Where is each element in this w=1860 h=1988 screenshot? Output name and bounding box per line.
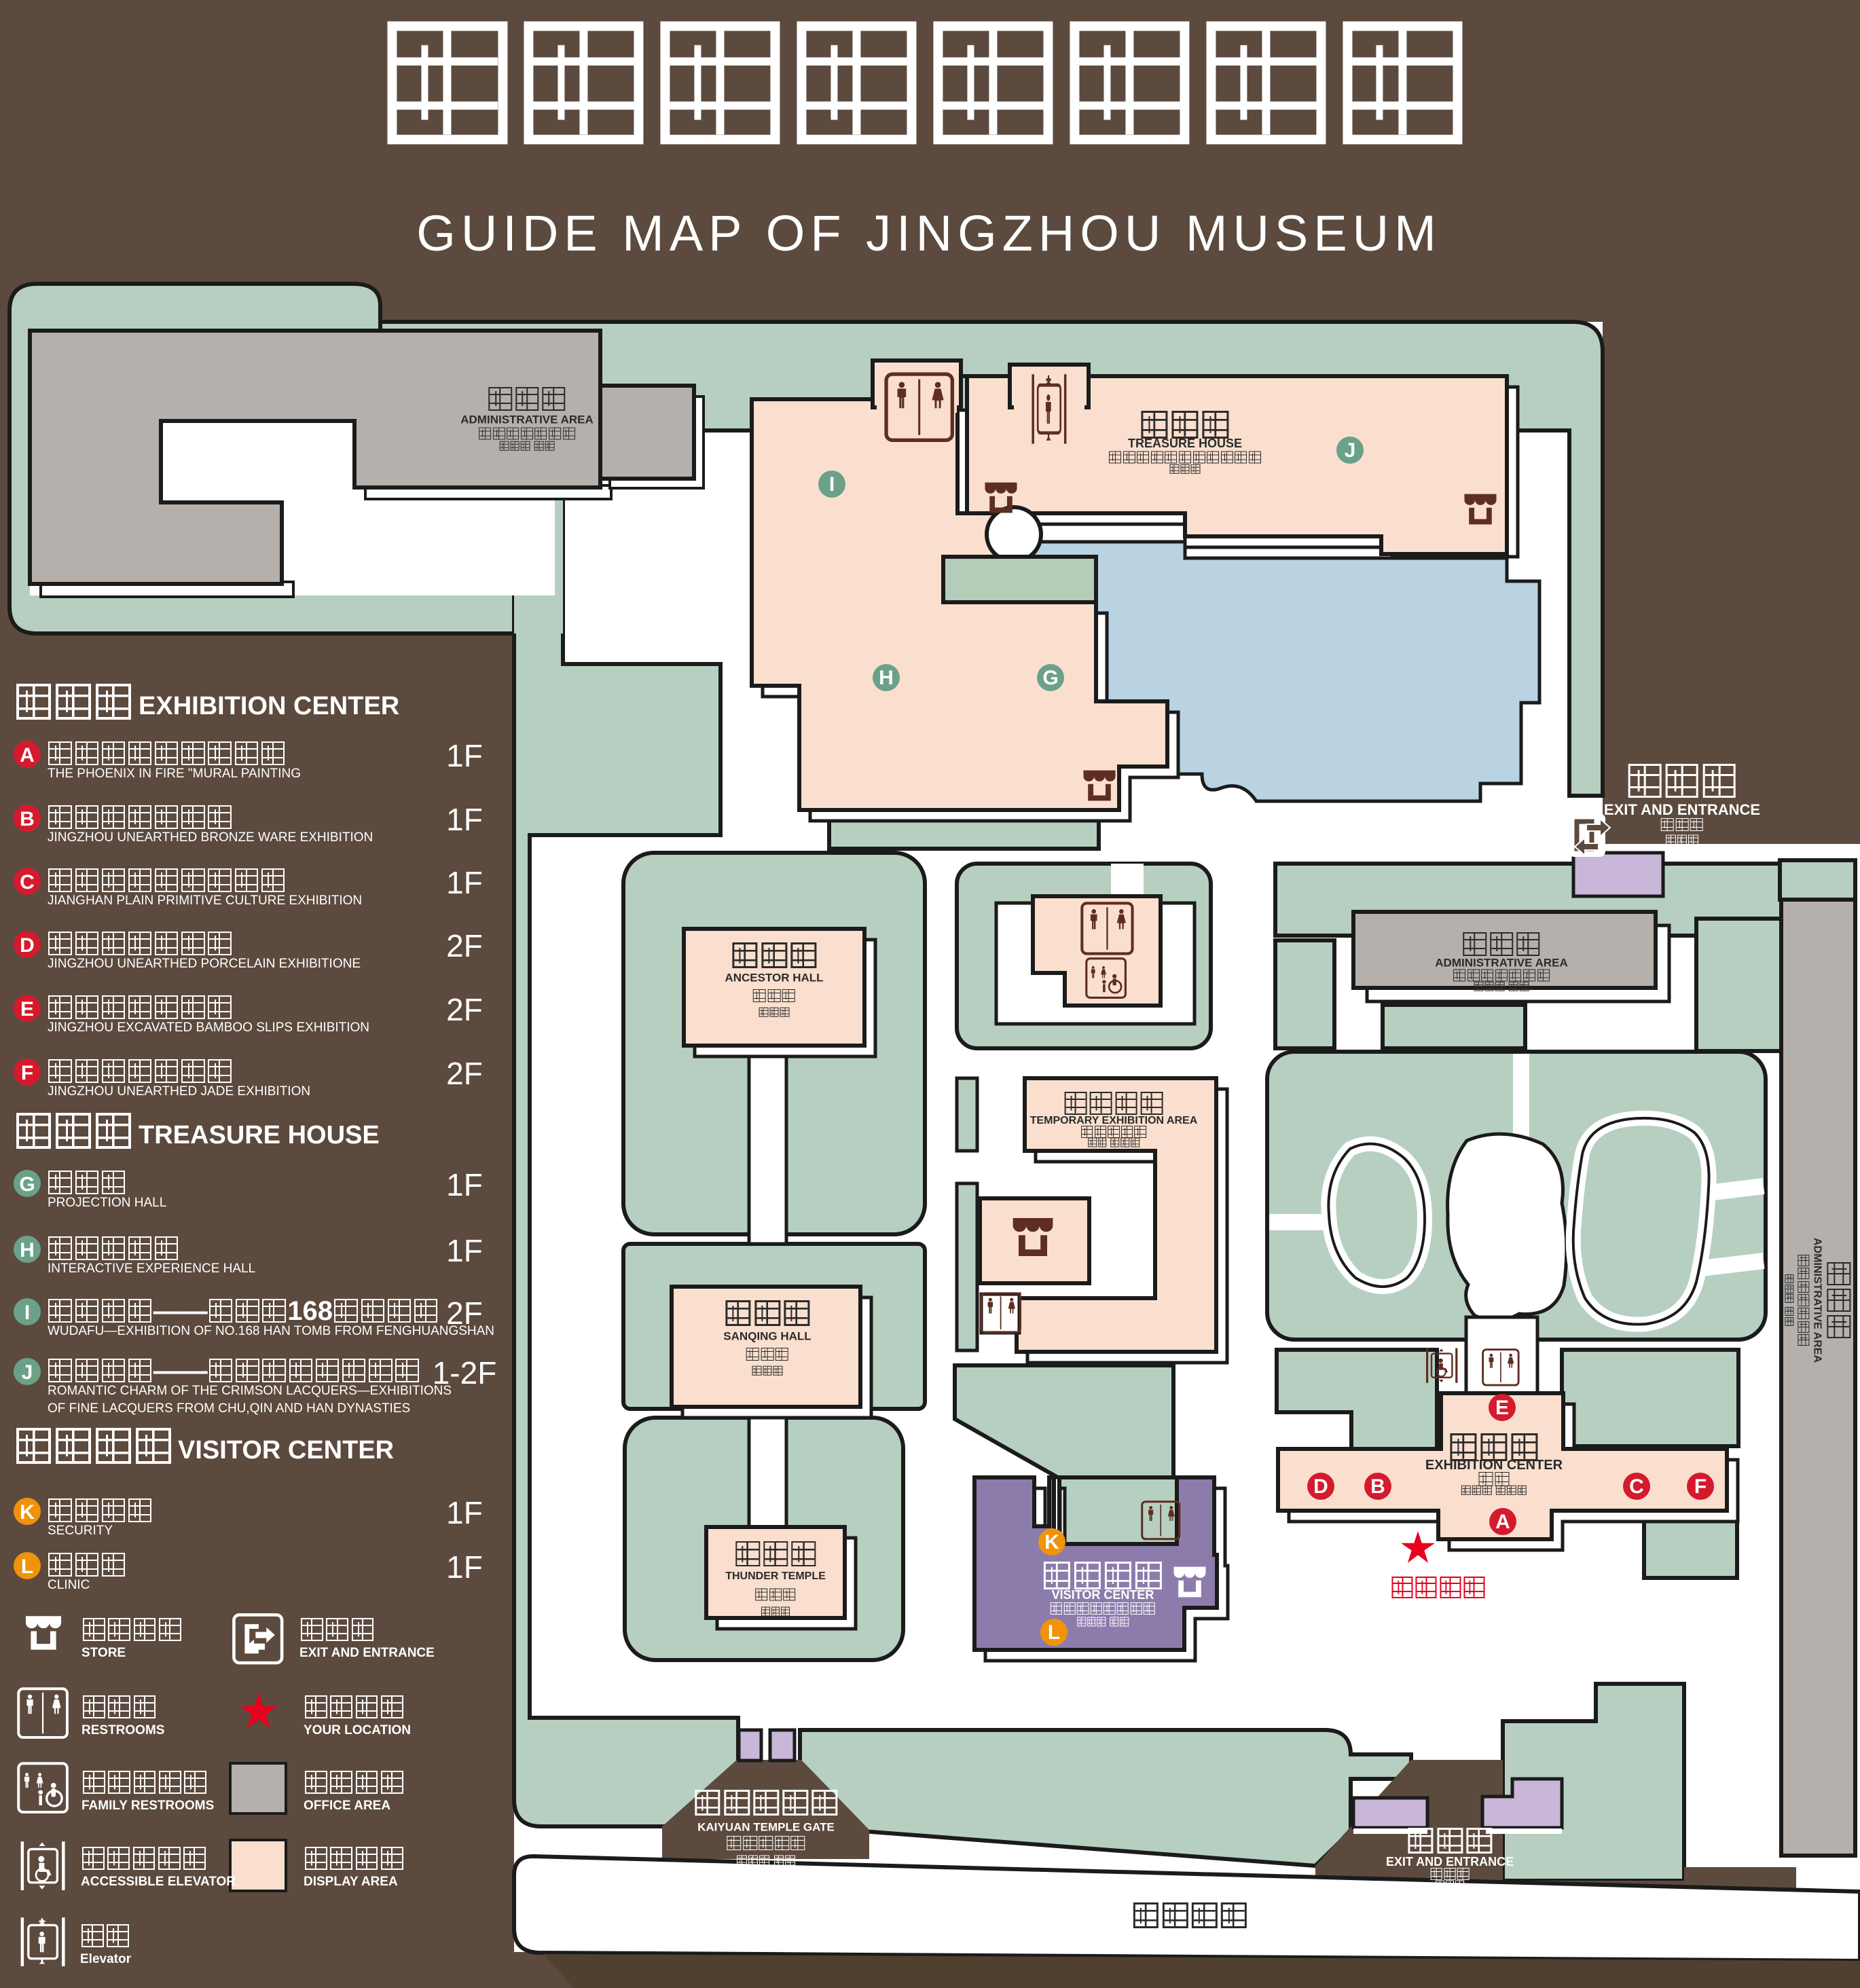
svg-text:K: K [20, 1501, 35, 1524]
svg-text:K: K [1044, 1531, 1059, 1553]
svg-text:H: H [20, 1239, 35, 1262]
svg-text:C: C [1629, 1475, 1644, 1498]
svg-text:B: B [1370, 1475, 1385, 1498]
svg-text:L: L [1048, 1621, 1060, 1644]
svg-text:H: H [879, 667, 894, 689]
svg-text:A: A [20, 744, 35, 767]
svg-text:I: I [24, 1302, 30, 1324]
svg-text:E: E [20, 998, 34, 1020]
svg-text:J: J [1345, 439, 1356, 462]
svg-text:G: G [1042, 667, 1058, 689]
svg-text:A: A [1495, 1511, 1510, 1533]
svg-text:G: G [19, 1173, 35, 1196]
svg-text:F: F [1694, 1475, 1707, 1498]
svg-text:B: B [20, 808, 35, 830]
svg-text:F: F [21, 1062, 33, 1084]
svg-text:C: C [20, 871, 35, 894]
svg-text:I: I [829, 473, 835, 496]
svg-text:E: E [1495, 1397, 1509, 1419]
svg-text:L: L [21, 1556, 33, 1578]
svg-text:D: D [20, 934, 35, 957]
svg-text:J: J [22, 1361, 33, 1384]
svg-text:D: D [1313, 1475, 1328, 1498]
